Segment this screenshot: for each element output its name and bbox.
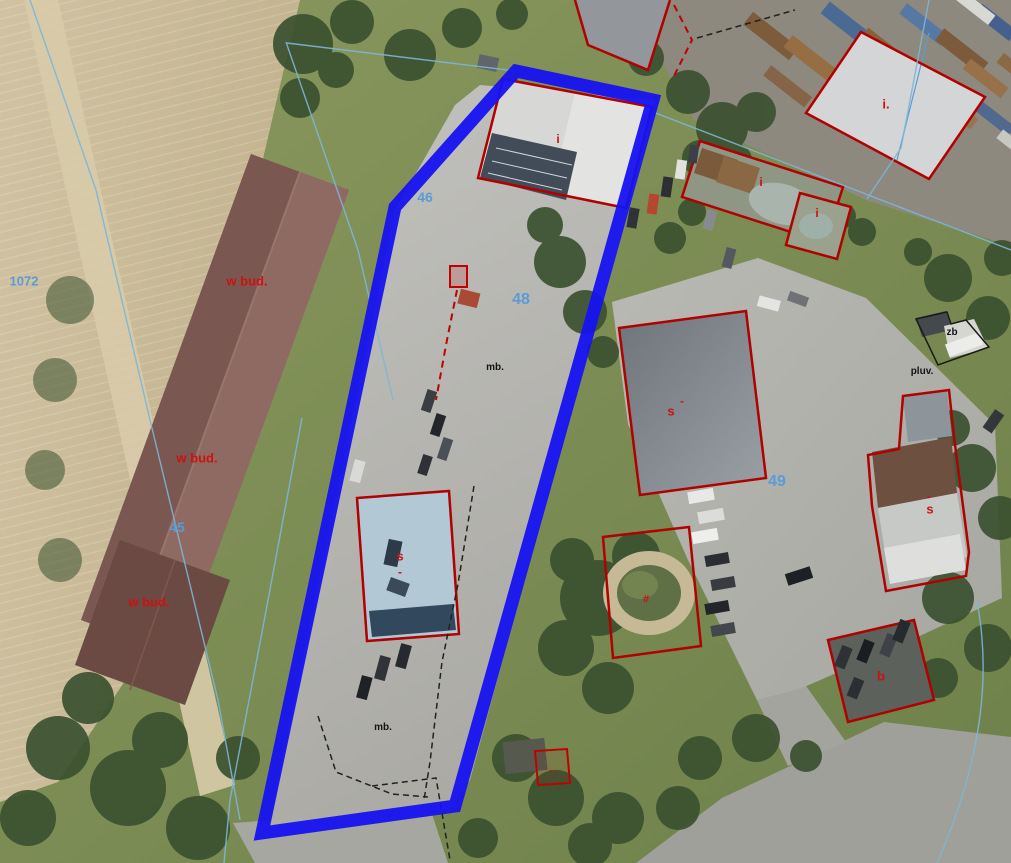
aerial-map-view[interactable]: 1072 45 46 48 49 w bud. w bud. w bud. i … (0, 0, 1011, 863)
parcel-number-1072[interactable]: 1072 (10, 275, 39, 288)
parcel-number-48[interactable]: 48 (512, 292, 530, 308)
annotation-w-bud-1: w bud. (226, 275, 267, 288)
annotation-i-pond-long: i (759, 176, 762, 188)
annotation-s-center-dash: - (680, 397, 684, 408)
annotation-i-warehouse: i (556, 133, 559, 145)
annotation-i-pond-small: i (815, 207, 818, 219)
annotation-mb-2: mb. (374, 723, 392, 733)
annotation-s-center: s (667, 405, 674, 418)
annotation-w-bud-2: w bud. (176, 452, 217, 465)
annotation-zb: zb (946, 328, 957, 338)
parcel-number-49[interactable]: 49 (768, 474, 786, 490)
annotation-s-blue-dash: - (398, 566, 402, 578)
annotation-w-bud-3: w bud. (128, 596, 169, 609)
annotation-shed-mark: - (549, 764, 553, 776)
annotation-s-right-dash: - (927, 490, 931, 502)
annotation-s-blue: s (396, 550, 403, 563)
center-grey-building[interactable] (619, 311, 766, 495)
parcel-number-46[interactable]: 46 (417, 190, 433, 204)
parcel-number-45[interactable]: 45 (169, 520, 185, 534)
map-canvas[interactable] (0, 0, 1011, 863)
blue-roof-building[interactable] (357, 491, 459, 641)
annotation-s-right: s (926, 503, 933, 516)
annotation-pluv: pluv. (911, 367, 934, 377)
annotation-b-parking: b (877, 670, 885, 683)
annotation-i-hall: i. (882, 98, 889, 111)
annotation-pond-mark: # (643, 595, 649, 606)
annotation-mb-1: mb. (486, 363, 504, 373)
